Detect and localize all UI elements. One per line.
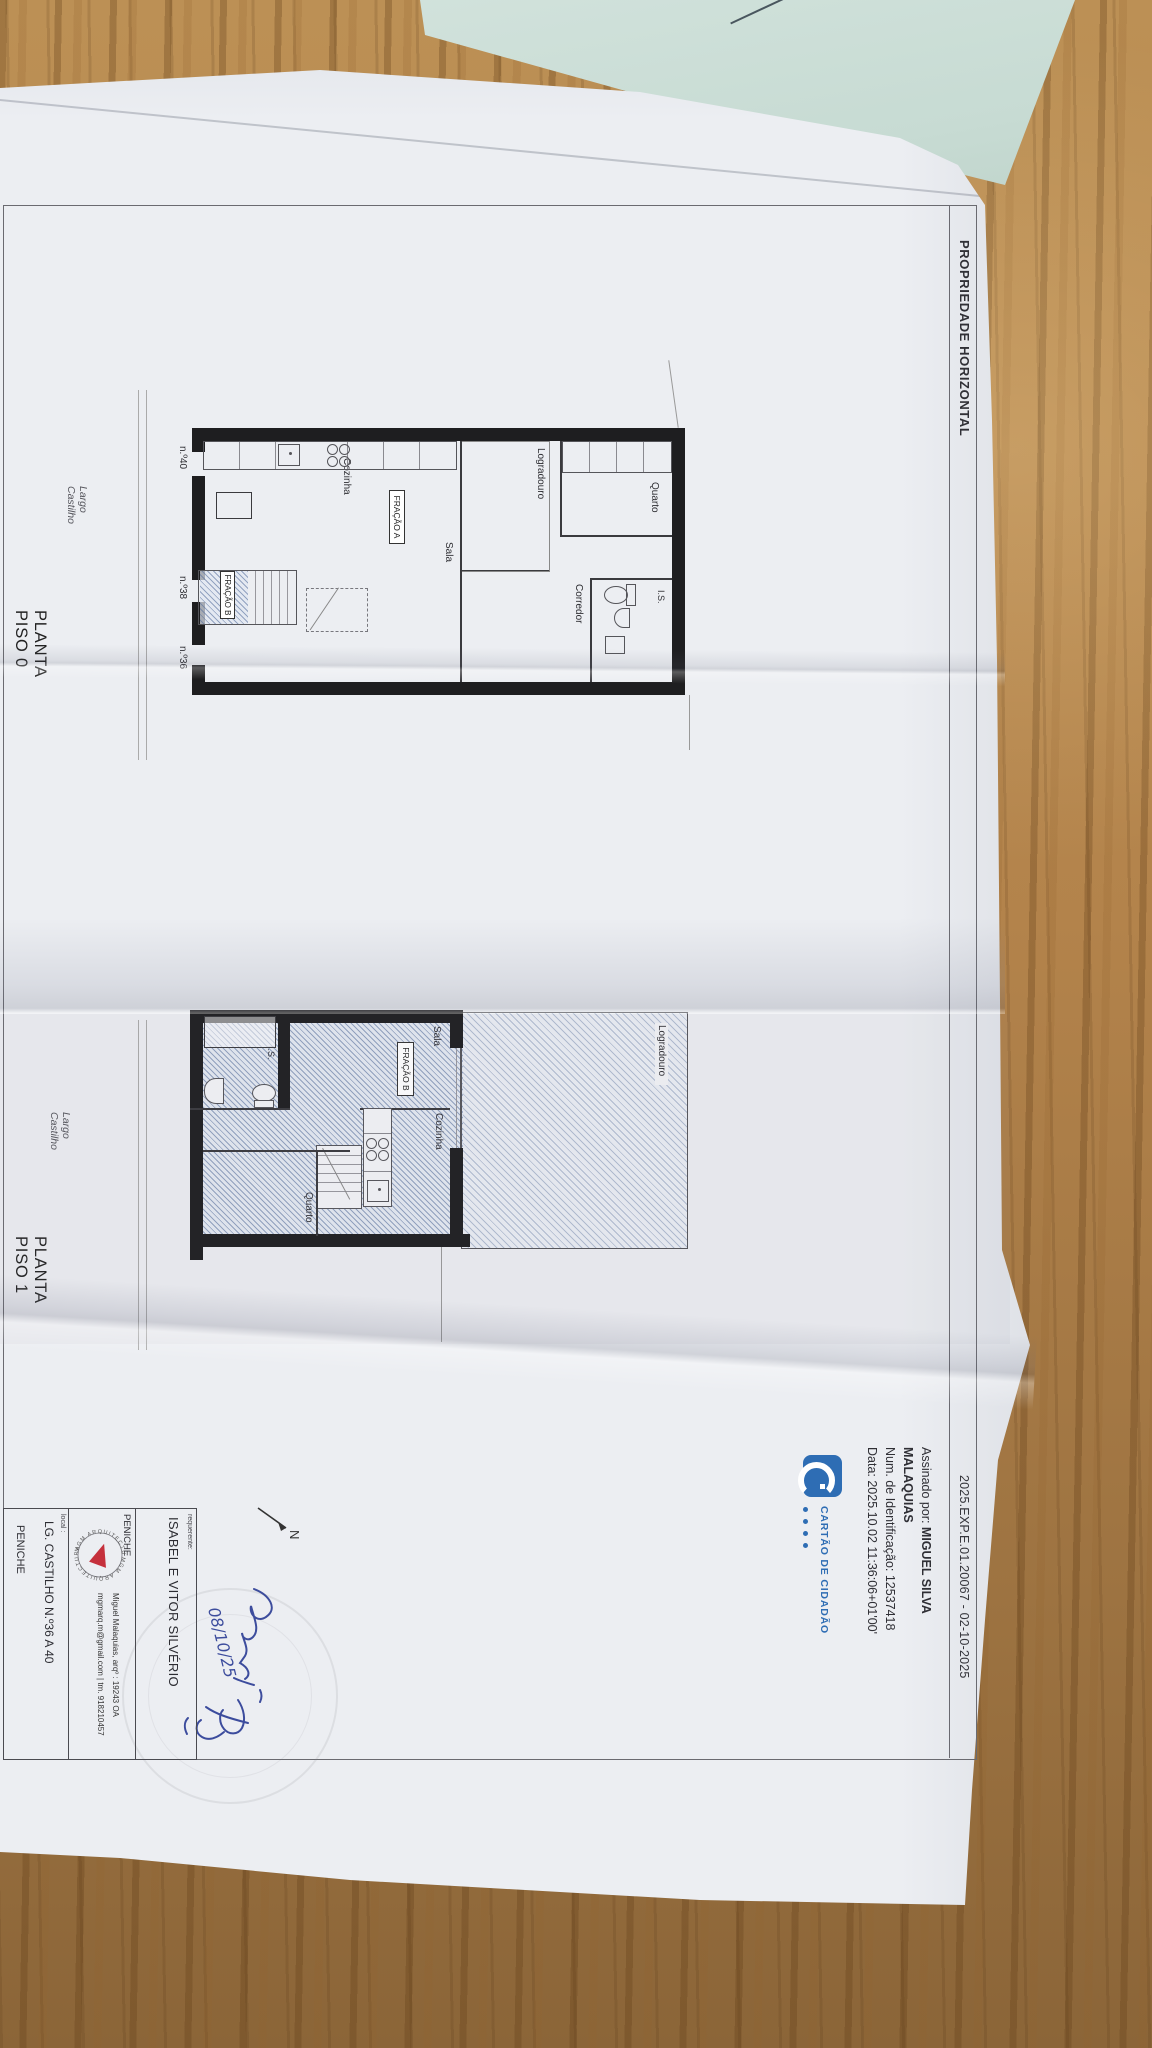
- wall-segment: [190, 1234, 470, 1247]
- sink-drain: [289, 452, 292, 455]
- washbasin-fixture: [614, 608, 630, 628]
- fraction-a-label: FRAÇÃO A: [389, 490, 405, 544]
- wall-segment: [316, 1150, 318, 1236]
- street-curb-line: [146, 1020, 147, 1350]
- staircase: [198, 570, 297, 625]
- north-arrow: N: [252, 1504, 308, 1548]
- room-label-logradouro: Logradouro: [656, 1025, 667, 1076]
- hob-burner: [339, 444, 350, 455]
- requerente-label: requerente:: [186, 1514, 193, 1550]
- door-opening: [192, 645, 205, 665]
- requerente-name: ISABEL E VITOR SILVÉRIO: [166, 1517, 181, 1687]
- cartao-cidadao-label: CARTÃO DE CIDADÃO: [818, 1506, 830, 1634]
- room-label-is: I.S.: [266, 1046, 276, 1060]
- signature-line-3: Num. de Identificação: 12537418: [881, 1447, 899, 1634]
- plan1-title: PLANTA PISO 1: [11, 1236, 49, 1303]
- shower-fixture: [204, 1016, 276, 1048]
- architect-line1: Miguel Malaquias, arqº : 19243 OA: [108, 1593, 123, 1736]
- wall-segment: [450, 1148, 463, 1247]
- hob-burner: [366, 1138, 377, 1149]
- street-curb-line: [146, 390, 147, 760]
- toilet-fixture: [604, 586, 628, 604]
- titleblock-divider: [135, 1509, 136, 1759]
- room-label-logradouro: Logradouro: [535, 448, 546, 499]
- room-label-corredor: Corredor: [573, 584, 584, 623]
- toilet-tank: [254, 1100, 274, 1108]
- handwritten-date: 08/10/25: [204, 1605, 240, 1679]
- wall-segment: [590, 578, 592, 682]
- room-label-sala: Sala: [431, 1026, 442, 1046]
- room-label-is: I.S.: [656, 590, 666, 604]
- backyard-logradouro: [461, 1012, 688, 1249]
- cartao-cidadao-dots: [803, 1507, 808, 1548]
- mgm-arquitectura-logo: MGM ARQUITECTURA MGM ARQUITECTURA: [72, 1527, 128, 1583]
- drawing-sheet-content: PROPRIEDADE HORIZONTAL 2025.EXP.E.01.200…: [0, 190, 990, 1930]
- titleblock-divider: [68, 1509, 69, 1759]
- hob-burner: [327, 444, 338, 455]
- room-label-quarto: Quarto: [303, 1192, 314, 1223]
- digital-signature-block: Assinado por: MIGUEL SILVA MALAQUIAS Num…: [863, 1447, 935, 1634]
- property-line: [689, 695, 690, 750]
- glazing-line: [456, 1048, 457, 1148]
- pen-mark: [730, 0, 802, 24]
- wall-segment: [190, 1108, 290, 1110]
- fraction-b-label: FRAÇÃO B: [220, 571, 235, 619]
- sheet-title: PROPRIEDADE HORIZONTAL: [957, 240, 972, 436]
- glazing-line: [460, 1048, 462, 1148]
- site-address: LG. CASTILHO N.º36 A 40: [42, 1521, 56, 1663]
- svg-text:N: N: [287, 1530, 302, 1539]
- plan0-title: PLANTA PISO 0: [11, 610, 49, 677]
- cartao-cidadao-icon: [803, 1455, 842, 1497]
- sink-fixture: [278, 444, 300, 466]
- title-strip-divider: [949, 205, 950, 1758]
- house-number-38: n.º38: [177, 576, 188, 599]
- signature-line-2: MALAQUIAS: [899, 1447, 917, 1634]
- street-curb-line: [138, 390, 139, 760]
- site-city: PENICHE: [14, 1525, 26, 1574]
- hob-burner: [366, 1150, 377, 1161]
- wall-segment: [192, 682, 685, 695]
- house-number-36: n.º36: [177, 646, 188, 669]
- signature-line-4: Data: 2025.10.02 11:36:06+01'00': [863, 1447, 881, 1634]
- property-line: [441, 1247, 442, 1342]
- wall-segment: [450, 1010, 463, 1048]
- street-label: Largo Castilho: [48, 1112, 72, 1150]
- architect-contact: Miguel Malaquias, arqº : 19243 OA mgmarq…: [93, 1593, 123, 1736]
- fraction-b-label: FRAÇÃO B: [397, 1042, 414, 1096]
- street-curb-line: [138, 1020, 139, 1350]
- washbasin-fixture: [204, 1078, 224, 1104]
- room-label-sala: Sala: [443, 542, 454, 562]
- wall-segment: [590, 578, 672, 580]
- wall-segment: [460, 441, 462, 682]
- staircase: [316, 1145, 362, 1209]
- wall-segment: [190, 1010, 203, 1260]
- sink-drain: [378, 1188, 381, 1191]
- local-label: local :: [59, 1514, 66, 1532]
- wall-segment: [278, 1010, 290, 1110]
- hob-burner: [327, 456, 338, 467]
- process-reference: 2025.EXP.E.01.20067 - 02-10-2025: [957, 1475, 971, 1679]
- closet: [216, 492, 252, 519]
- sink-fixture: [367, 1180, 389, 1202]
- wardrobe: [562, 441, 672, 473]
- room-label-cozinha: Cozinha: [433, 1113, 444, 1150]
- signature-line-1: Assinado por: MIGUEL SILVA: [917, 1447, 935, 1634]
- hob-burner: [339, 456, 350, 467]
- street-label: Largo Castilho: [65, 486, 89, 524]
- hob-burner: [378, 1138, 389, 1149]
- house-number-40: n.º40: [177, 446, 188, 469]
- room-label-quarto: Quarto: [649, 482, 660, 513]
- architect-line2: mgmarq.m@gmail.com | tm. 918210457: [93, 1593, 108, 1736]
- wall-segment: [672, 428, 685, 695]
- bidet-fixture: [605, 636, 625, 654]
- hob-burner: [378, 1150, 389, 1161]
- title-block: requerente: ISABEL E VITOR SILVÉRIO PENI…: [3, 1508, 197, 1760]
- wall-segment: [203, 1150, 350, 1152]
- stairwell-void: [306, 588, 368, 632]
- wall-segment: [192, 428, 685, 441]
- wall-segment: [560, 535, 672, 537]
- photo-of-architectural-document: { "header": { "title": "PROPRIEDADE HORI…: [0, 0, 1152, 2048]
